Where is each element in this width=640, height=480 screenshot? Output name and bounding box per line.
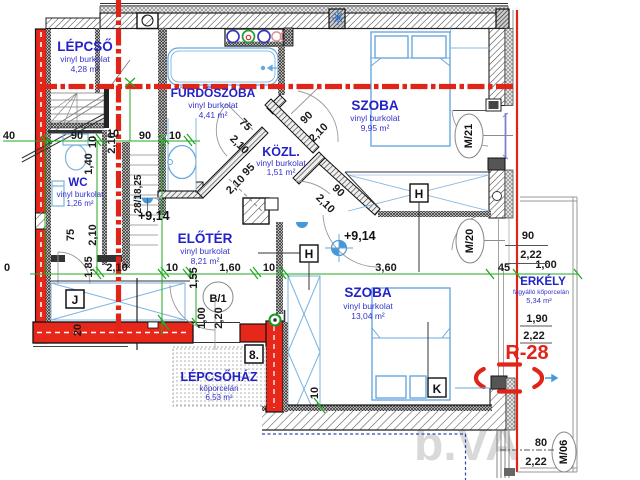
- svg-text:M/06: M/06: [558, 440, 570, 464]
- svg-text:SZOBA: SZOBA: [351, 98, 399, 113]
- svg-text:90: 90: [71, 130, 83, 142]
- svg-text:KÖZL.: KÖZL.: [262, 144, 300, 159]
- svg-text:1,40: 1,40: [83, 153, 95, 174]
- svg-text:K: K: [433, 382, 442, 396]
- svg-text:vinyl burkolat: vinyl burkolat: [350, 113, 400, 123]
- svg-text:40: 40: [3, 130, 15, 142]
- svg-text:1,90: 1,90: [526, 313, 547, 325]
- svg-text:8,21 m²: 8,21 m²: [191, 256, 220, 266]
- svg-text:M/20: M/20: [464, 229, 476, 253]
- svg-text:2,10: 2,10: [106, 262, 127, 274]
- svg-text:vinyl burkolat: vinyl burkolat: [180, 246, 230, 256]
- svg-text:H: H: [305, 247, 314, 261]
- svg-text:FÜRDŐSZOBA: FÜRDŐSZOBA: [171, 85, 256, 100]
- svg-text:WC: WC: [68, 177, 87, 189]
- svg-text:6,53 m²: 6,53 m²: [205, 393, 232, 402]
- svg-text:vinyl burkolat: vinyl burkolat: [343, 301, 393, 311]
- svg-text:90: 90: [139, 130, 151, 142]
- svg-text:1,55: 1,55: [188, 267, 200, 288]
- svg-text:+9,14: +9,14: [344, 229, 376, 243]
- svg-text:ERKÉLY: ERKÉLY: [520, 275, 566, 288]
- svg-text:10: 10: [87, 136, 99, 148]
- svg-text:1,26 m²: 1,26 m²: [66, 199, 93, 208]
- svg-text:1,51 m²: 1,51 m²: [267, 167, 296, 177]
- svg-text:2,10: 2,10: [106, 132, 118, 153]
- svg-text:H: H: [415, 187, 424, 201]
- svg-text:9,95 m²: 9,95 m²: [361, 123, 390, 133]
- svg-text:1,85: 1,85: [83, 256, 95, 277]
- svg-text:fagyálló kőporcelán: fagyálló kőporcelán: [513, 289, 569, 296]
- svg-text:B/1: B/1: [209, 293, 226, 305]
- svg-text:80: 80: [535, 437, 547, 449]
- svg-text:vinyl burkolat: vinyl burkolat: [188, 100, 238, 110]
- svg-text:10: 10: [169, 130, 181, 142]
- svg-text:kőporcelán: kőporcelán: [199, 384, 238, 393]
- svg-text:1,60: 1,60: [219, 262, 240, 274]
- svg-text:4,41 m²: 4,41 m²: [199, 110, 228, 120]
- svg-text:20: 20: [72, 324, 84, 336]
- svg-text:10: 10: [309, 387, 321, 399]
- svg-text:2,22: 2,22: [525, 456, 546, 468]
- svg-text:J: J: [72, 293, 79, 307]
- svg-text:LÉPCSŐHÁZ: LÉPCSŐHÁZ: [180, 369, 257, 384]
- svg-text:90: 90: [522, 230, 534, 242]
- svg-text:SZOBA: SZOBA: [344, 285, 392, 300]
- svg-text:5,34 m²: 5,34 m²: [526, 296, 552, 305]
- svg-text:M/21: M/21: [463, 124, 475, 148]
- svg-text:75: 75: [65, 229, 77, 241]
- svg-text:0: 0: [4, 262, 10, 274]
- svg-text:LÉPCSŐ: LÉPCSŐ: [57, 39, 113, 54]
- svg-text:2,10: 2,10: [87, 224, 99, 245]
- svg-text:R-28: R-28: [505, 342, 548, 364]
- svg-text:ELŐTÉR: ELŐTÉR: [178, 231, 233, 246]
- svg-text:4,28 m²: 4,28 m²: [71, 64, 100, 74]
- svg-text:1,00: 1,00: [196, 307, 208, 328]
- svg-text:3,60: 3,60: [375, 262, 396, 274]
- svg-text:2,22: 2,22: [523, 330, 544, 342]
- svg-text:vinyl burkolat: vinyl burkolat: [60, 54, 110, 64]
- svg-text:vinyl burkolat: vinyl burkolat: [57, 190, 104, 199]
- svg-text:8.: 8.: [249, 348, 259, 362]
- svg-text:10: 10: [166, 262, 178, 274]
- svg-text:10: 10: [263, 262, 275, 274]
- svg-text:13,04 m²: 13,04 m²: [351, 311, 385, 321]
- svg-text:28/18,25: 28/18,25: [133, 174, 144, 213]
- svg-text:2,22: 2,22: [520, 249, 541, 261]
- svg-text:2,20: 2,20: [213, 307, 225, 328]
